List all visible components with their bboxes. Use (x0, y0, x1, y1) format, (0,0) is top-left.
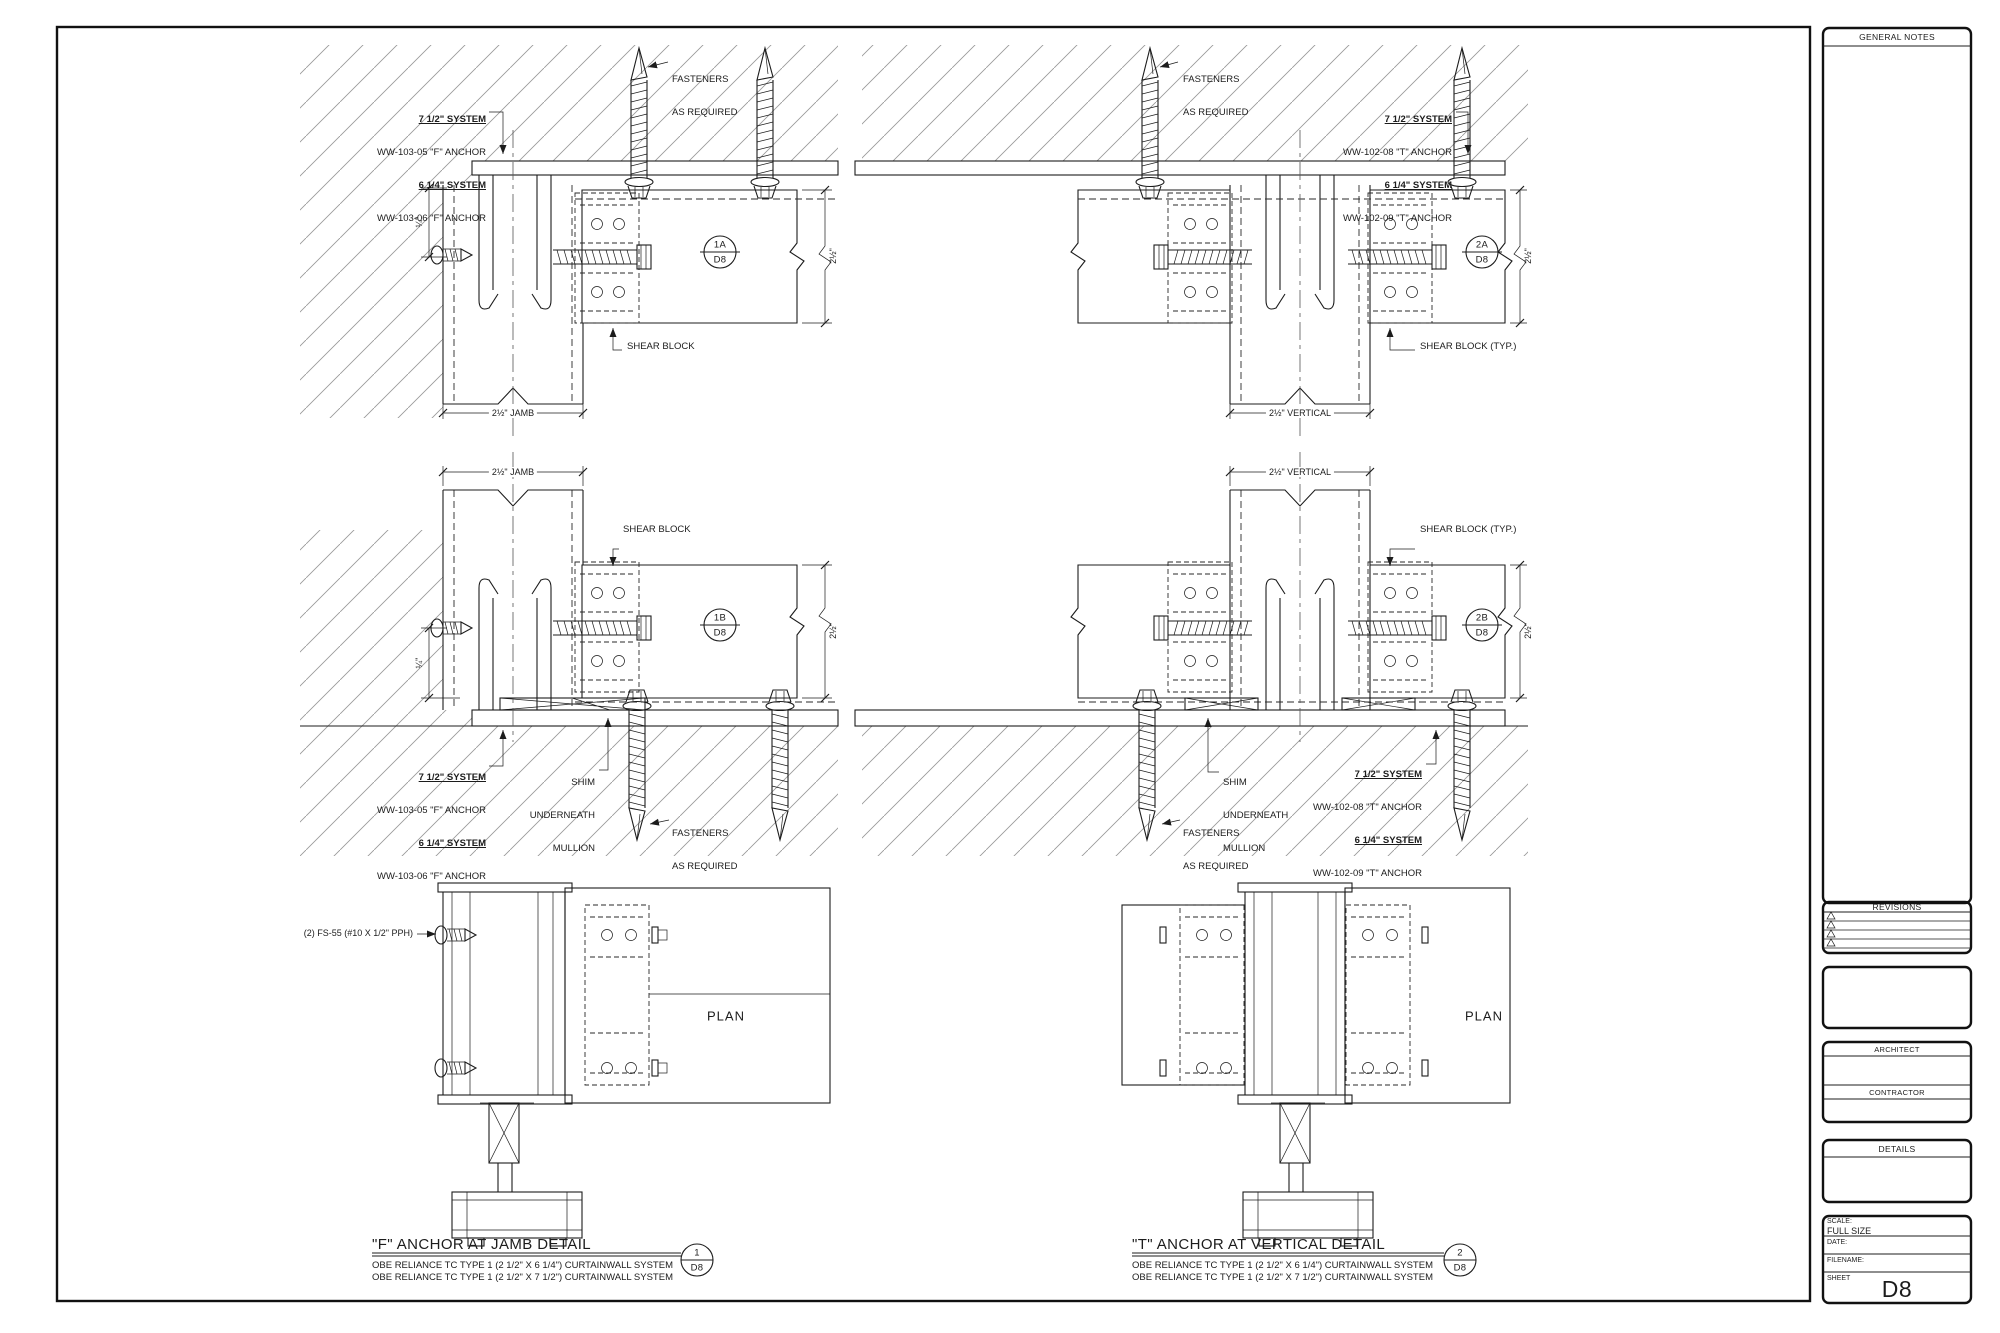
bubble-1b-number: 1B (714, 613, 726, 624)
dim-quarter-1b: ¼" (414, 658, 424, 669)
bubble-1a-sheet: D8 (714, 255, 727, 266)
shim-note-1b: SHIM UNDERNEATH MULLION (520, 755, 595, 876)
dim-jamb-1a: 2½" JAMB (489, 408, 537, 418)
detail-2-subtitle-1: OBE RELIANCE TC TYPE 1 (2 1/2" X 6 1/4")… (1132, 1260, 1433, 1271)
callout-line: 7 1/2" SYSTEM (1292, 769, 1422, 780)
bubble-2a-sheet: D8 (1476, 255, 1489, 266)
fs55-note: (2) FS-55 (#10 X 1/2" PPH) (298, 928, 413, 939)
callout-line: WW-102-09 "T" ANCHOR (1292, 868, 1422, 879)
plan-label-2: PLAN (1465, 1009, 1503, 1024)
detail-1-subtitle-1: OBE RELIANCE TC TYPE 1 (2 1/2" X 6 1/4")… (372, 1260, 673, 1271)
text-layer: FASTENERS AS REQUIRED 7 1/2" SYSTEM WW-1… (0, 0, 2000, 1333)
note-line: FASTENERS (1183, 828, 1248, 839)
dim-vertical-2a: 2½" VERTICAL (1266, 408, 1334, 418)
bubble-1a-number: 1A (714, 240, 726, 251)
shear-block-note-1a: SHEAR BLOCK (627, 341, 695, 352)
note-line: AS REQUIRED (672, 861, 737, 872)
note-line: SHIM (1223, 777, 1288, 788)
note-line: AS REQUIRED (1183, 107, 1248, 118)
sheet-number: D8 (1882, 1276, 1912, 1303)
fasteners-note-1a: FASTENERS AS REQUIRED (672, 52, 737, 140)
note-line: MULLION (520, 843, 595, 854)
note-line: FASTENERS (672, 74, 737, 85)
note-line: FASTENERS (1183, 74, 1248, 85)
detail-1-title: "F" ANCHOR AT JAMB DETAIL (372, 1236, 591, 1253)
note-line: AS REQUIRED (1183, 861, 1248, 872)
callout-line: 6 1/4" SYSTEM (1292, 835, 1422, 846)
revisions-header: REVISIONS (1873, 902, 1922, 912)
f-anchor-callout-1b: 7 1/2" SYSTEM WW-103-05 "F" ANCHOR 6 1/4… (356, 750, 486, 904)
bubble-1-sheet: D8 (691, 1263, 704, 1274)
callout-line: 6 1/4" SYSTEM (356, 180, 486, 191)
shear-block-note-2b: SHEAR BLOCK (TYP.) (1420, 524, 1516, 535)
architect-header: ARCHITECT (1874, 1045, 1920, 1054)
contractor-header: CONTRACTOR (1869, 1088, 1925, 1097)
filename-label: FILENAME: (1827, 1257, 1864, 1264)
callout-line: WW-103-05 "F" ANCHOR (356, 805, 486, 816)
fasteners-note-2b: FASTENERS AS REQUIRED (1183, 806, 1248, 894)
dim-vertical-2b: 2½" VERTICAL (1266, 467, 1334, 477)
t-anchor-callout-2b: 7 1/2" SYSTEM WW-102-08 "T" ANCHOR 6 1/4… (1292, 747, 1422, 901)
bubble-2a-number: 2A (1476, 240, 1488, 251)
note-line: SHIM (520, 777, 595, 788)
bubble-1-number: 1 (694, 1248, 700, 1259)
dim-jamb-1b: 2½" JAMB (489, 467, 537, 477)
callout-line: WW-102-08 "T" ANCHOR (1292, 802, 1422, 813)
callout-line: 7 1/2" SYSTEM (1322, 114, 1452, 125)
scale-value: FULL SIZE (1827, 1226, 1871, 1236)
dim-twohalf-1a: 2½" (828, 248, 838, 264)
t-anchor-callout-2a: 7 1/2" SYSTEM WW-102-08 "T" ANCHOR 6 1/4… (1322, 92, 1452, 246)
bubble-2-sheet: D8 (1454, 1263, 1467, 1274)
date-label: DATE: (1827, 1239, 1847, 1246)
bubble-2b-number: 2B (1476, 613, 1488, 624)
fasteners-note-1b: FASTENERS AS REQUIRED (672, 806, 737, 894)
dim-twohalf-1b: 2½" (828, 623, 838, 639)
detail-2-subtitle-2: OBE RELIANCE TC TYPE 1 (2 1/2" X 7 1/2")… (1132, 1272, 1433, 1283)
note-line: UNDERNEATH (520, 810, 595, 821)
callout-line: WW-103-05 "F" ANCHOR (356, 147, 486, 158)
drawing-sheet: FASTENERS AS REQUIRED 7 1/2" SYSTEM WW-1… (0, 0, 2000, 1333)
shear-block-note-2a: SHEAR BLOCK (TYP.) (1420, 341, 1516, 352)
dim-quarter-1a: ¼" (414, 217, 424, 228)
callout-line: 6 1/4" SYSTEM (1322, 180, 1452, 191)
fasteners-note-2a: FASTENERS AS REQUIRED (1183, 52, 1248, 140)
note-line: FASTENERS (672, 828, 737, 839)
callout-line: 7 1/2" SYSTEM (356, 772, 486, 783)
callout-line: WW-102-08 "T" ANCHOR (1322, 147, 1452, 158)
callout-line: 6 1/4" SYSTEM (356, 838, 486, 849)
callout-line: 7 1/2" SYSTEM (356, 114, 486, 125)
callout-line: WW-102-09 "T" ANCHOR (1322, 213, 1452, 224)
scale-label: SCALE: (1827, 1218, 1852, 1225)
bubble-2b-sheet: D8 (1476, 628, 1489, 639)
bubble-2-number: 2 (1457, 1248, 1463, 1259)
plan-label-1: PLAN (707, 1009, 745, 1024)
note-line: AS REQUIRED (672, 107, 737, 118)
details-header: DETAILS (1879, 1144, 1916, 1154)
shear-block-note-1b: SHEAR BLOCK (623, 524, 691, 535)
sheet-label: SHEET (1827, 1275, 1850, 1282)
dim-twohalf-2a: 2½" (1523, 248, 1533, 264)
detail-2-title: "T" ANCHOR AT VERTICAL DETAIL (1132, 1236, 1385, 1253)
callout-line: WW-103-06 "F" ANCHOR (356, 871, 486, 882)
bubble-1b-sheet: D8 (714, 628, 727, 639)
general-notes-header: GENERAL NOTES (1859, 32, 1935, 42)
dim-twohalf-2b: 2½" (1523, 623, 1533, 639)
detail-1-subtitle-2: OBE RELIANCE TC TYPE 1 (2 1/2" X 7 1/2")… (372, 1272, 673, 1283)
